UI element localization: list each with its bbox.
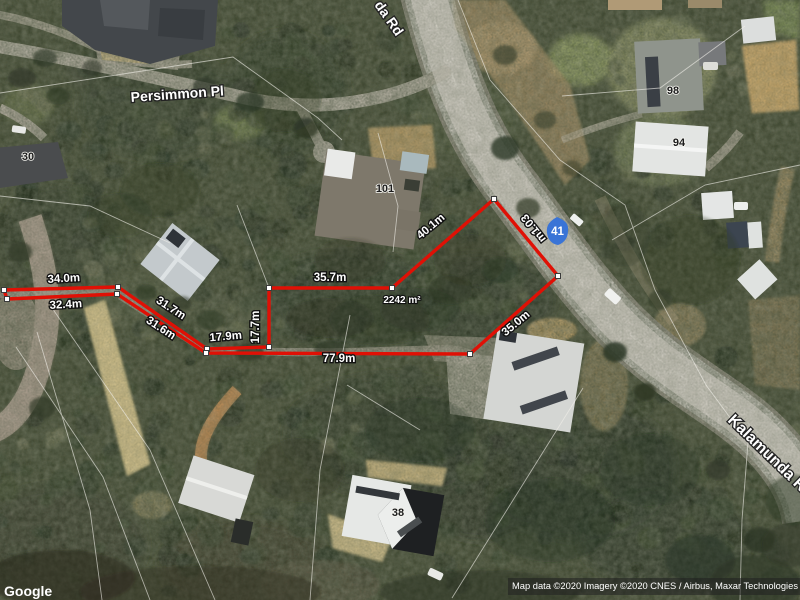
svg-text:Google: Google — [4, 583, 52, 599]
svg-text:94: 94 — [673, 137, 686, 149]
svg-text:35.7m: 35.7m — [314, 272, 347, 284]
svg-text:41: 41 — [551, 226, 564, 238]
svg-text:30: 30 — [22, 151, 34, 163]
svg-text:17.7m: 17.7m — [250, 311, 262, 344]
svg-text:98: 98 — [667, 85, 679, 97]
svg-text:32.4m: 32.4m — [49, 298, 82, 312]
svg-text:34.0m: 34.0m — [47, 272, 80, 286]
svg-text:77.9m: 77.9m — [323, 353, 356, 365]
svg-text:101: 101 — [376, 183, 394, 195]
svg-text:Map data ©2020 Imagery ©2020 C: Map data ©2020 Imagery ©2020 CNES / Airb… — [512, 581, 798, 592]
svg-text:2242 m²: 2242 m² — [383, 295, 421, 306]
svg-text:38: 38 — [392, 507, 404, 519]
